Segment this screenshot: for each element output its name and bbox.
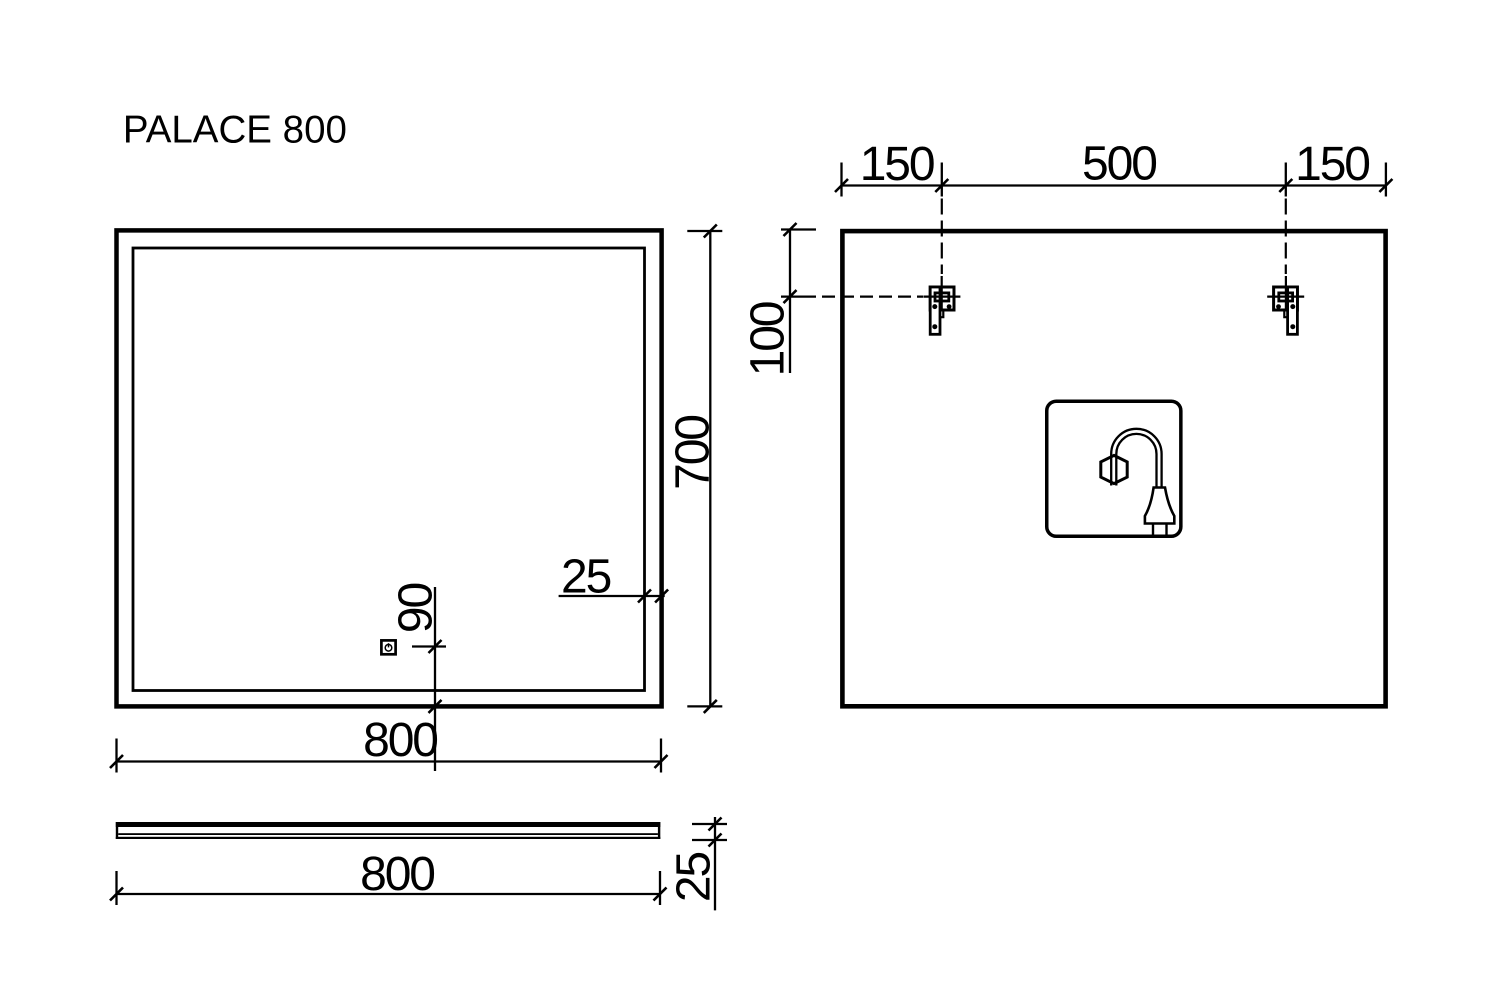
svg-text:100: 100	[742, 302, 795, 376]
svg-text:800: 800	[363, 714, 437, 767]
svg-text:150: 150	[1295, 138, 1369, 191]
svg-text:800: 800	[360, 848, 434, 901]
svg-text:25: 25	[561, 551, 611, 604]
svg-text:150: 150	[860, 138, 934, 191]
svg-text:PALACE 800: PALACE 800	[123, 108, 347, 151]
svg-text:25: 25	[668, 853, 721, 903]
svg-text:700: 700	[667, 416, 720, 490]
svg-text:90: 90	[390, 584, 443, 634]
svg-text:500: 500	[1082, 137, 1156, 190]
